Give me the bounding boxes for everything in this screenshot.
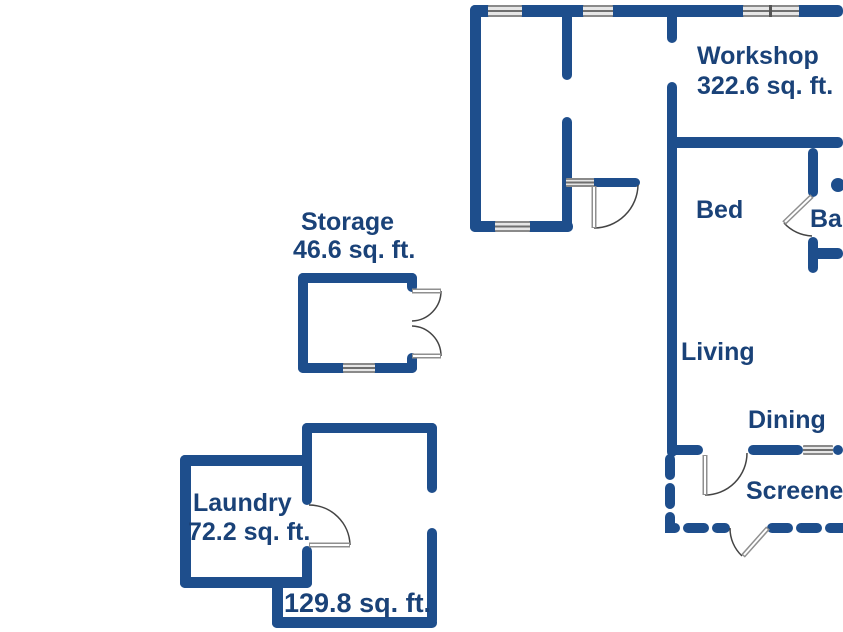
storage-door-bottom-arc	[412, 326, 441, 356]
laundry-door-arc	[309, 505, 350, 545]
bonus-room-area: 129.8 sq. ft.	[284, 589, 431, 619]
floor-plan: Workshop 322.6 sq. ft. Storage 46.6 sq. …	[0, 0, 843, 632]
screened-porch-label: Screene	[746, 478, 843, 506]
bath-door-arc	[784, 223, 812, 236]
storage-label: Storage	[301, 209, 394, 237]
workshop-area: 322.6 sq. ft.	[697, 73, 833, 101]
porch-interior-door-arc	[705, 453, 747, 495]
bed-label: Bed	[696, 197, 743, 225]
laundry-label: Laundry	[193, 490, 292, 518]
bath-door-leaf-inner	[785, 197, 811, 222]
storage-area: 46.6 sq. ft.	[293, 237, 415, 265]
porch-exterior-door-leaf-inner	[744, 529, 767, 555]
storage-door-top-arc	[412, 291, 441, 321]
bath-label: Ba	[810, 206, 842, 234]
living-label: Living	[681, 339, 755, 367]
dining-label: Dining	[748, 407, 826, 435]
middle-room-door-arc	[594, 185, 638, 228]
workshop-label: Workshop	[697, 43, 819, 71]
porch-exterior-door-arc	[730, 528, 742, 556]
laundry-area: 72.2 sq. ft.	[188, 519, 310, 547]
